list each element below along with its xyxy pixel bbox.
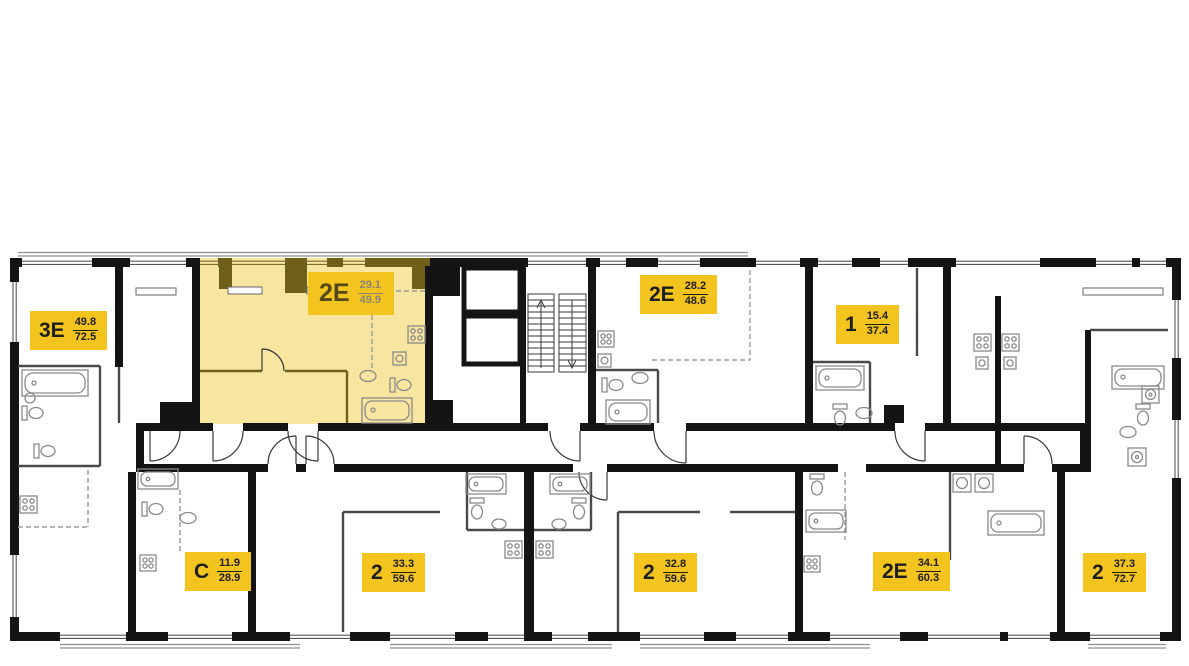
- stove-icon: [598, 331, 614, 347]
- shower-icon: [1128, 448, 1146, 466]
- stove-icon: [804, 556, 820, 572]
- toilet-icon: [1136, 404, 1150, 425]
- washer-icon: [975, 474, 993, 492]
- apartment-areas: 15.4 37.4: [865, 310, 890, 339]
- staircase-icon: [528, 294, 586, 372]
- stove-icon: [974, 334, 991, 351]
- apartment-areas: 11.9 28.9: [217, 557, 242, 586]
- bathtub-icon: [988, 511, 1044, 535]
- apartment-type: 2Е: [319, 281, 350, 306]
- corridor-walls: [136, 423, 1088, 472]
- sink-icon: [492, 519, 506, 529]
- apartment-type: 3Е: [39, 320, 65, 341]
- toilet-icon: [22, 406, 43, 420]
- kitchen-sink-icon: [598, 354, 611, 367]
- bathtub-icon: [606, 400, 650, 424]
- apartment-areas: 32.8 59.6: [663, 558, 688, 587]
- toilet-icon: [470, 498, 484, 519]
- bathtub-icon: [816, 366, 864, 390]
- apartment-label-s[interactable]: С 11.9 28.9: [185, 552, 251, 591]
- bathtub-icon: [22, 370, 88, 396]
- apartment-type: С: [194, 561, 209, 582]
- apartment-areas: 49.8 72.5: [73, 316, 98, 345]
- stove-icon: [505, 541, 522, 558]
- apartment-label-2-2[interactable]: 2 32.8 59.6: [634, 553, 697, 592]
- stove-icon: [140, 555, 156, 571]
- kitchen-sink-icon: [976, 357, 988, 369]
- toilet-icon: [833, 404, 847, 425]
- bathtub-icon: [550, 474, 590, 494]
- apartment-label-2e-2[interactable]: 2Е 28.2 48.6: [640, 275, 717, 314]
- sink-icon: [552, 519, 566, 529]
- apartment-type: 2: [643, 562, 655, 583]
- toilet-icon: [142, 502, 163, 516]
- apartment-label-2e-selected[interactable]: 2Е 29.1 49.9: [308, 272, 394, 315]
- washer-icon: [953, 474, 971, 492]
- sink-icon: [1120, 427, 1136, 438]
- apartment-areas: 34.1 60.3: [916, 557, 941, 586]
- stove-icon: [1002, 334, 1019, 351]
- stove-icon: [20, 496, 37, 513]
- floor-plan-page: 3Е 49.8 72.5 2Е 29.1 49.9 2Е 28.2 48.6 1…: [0, 0, 1189, 666]
- apartment-type: 2: [1092, 562, 1104, 583]
- toilet-icon: [34, 444, 55, 458]
- bathtub-icon: [466, 474, 506, 494]
- apartment-label-2-3[interactable]: 2 37.3 72.7: [1083, 553, 1146, 592]
- toilet-icon: [602, 378, 623, 392]
- toilet-icon: [810, 474, 824, 495]
- sink-icon: [632, 373, 648, 384]
- apartment-areas: 28.2 48.6: [683, 280, 708, 309]
- stove-icon: [536, 541, 553, 558]
- sink-icon: [25, 393, 35, 403]
- apartment-label-1[interactable]: 1 15.4 37.4: [836, 305, 899, 344]
- apartment-areas: 37.3 72.7: [1112, 558, 1137, 587]
- apartment-type: 2Е: [649, 284, 675, 305]
- kitchen-sink-icon: [1004, 357, 1016, 369]
- apartment-areas: 33.3 59.6: [391, 558, 416, 587]
- floor-plan: [0, 0, 1189, 666]
- apartment-label-2e-3[interactable]: 2Е 34.1 60.3: [873, 552, 950, 591]
- sink-icon: [180, 513, 196, 524]
- apartment-type: 2Е: [882, 561, 908, 582]
- apartment-label-3e[interactable]: 3Е 49.8 72.5: [30, 311, 107, 350]
- apartment-type: 2: [371, 562, 383, 583]
- elevator-shafts: [464, 268, 520, 364]
- apartment-label-2-1[interactable]: 2 33.3 59.6: [362, 553, 425, 592]
- apartment-areas: 29.1 49.9: [358, 279, 383, 308]
- bathtub-icon: [806, 510, 846, 532]
- apartment-type: 1: [845, 314, 857, 335]
- toilet-icon: [572, 498, 586, 519]
